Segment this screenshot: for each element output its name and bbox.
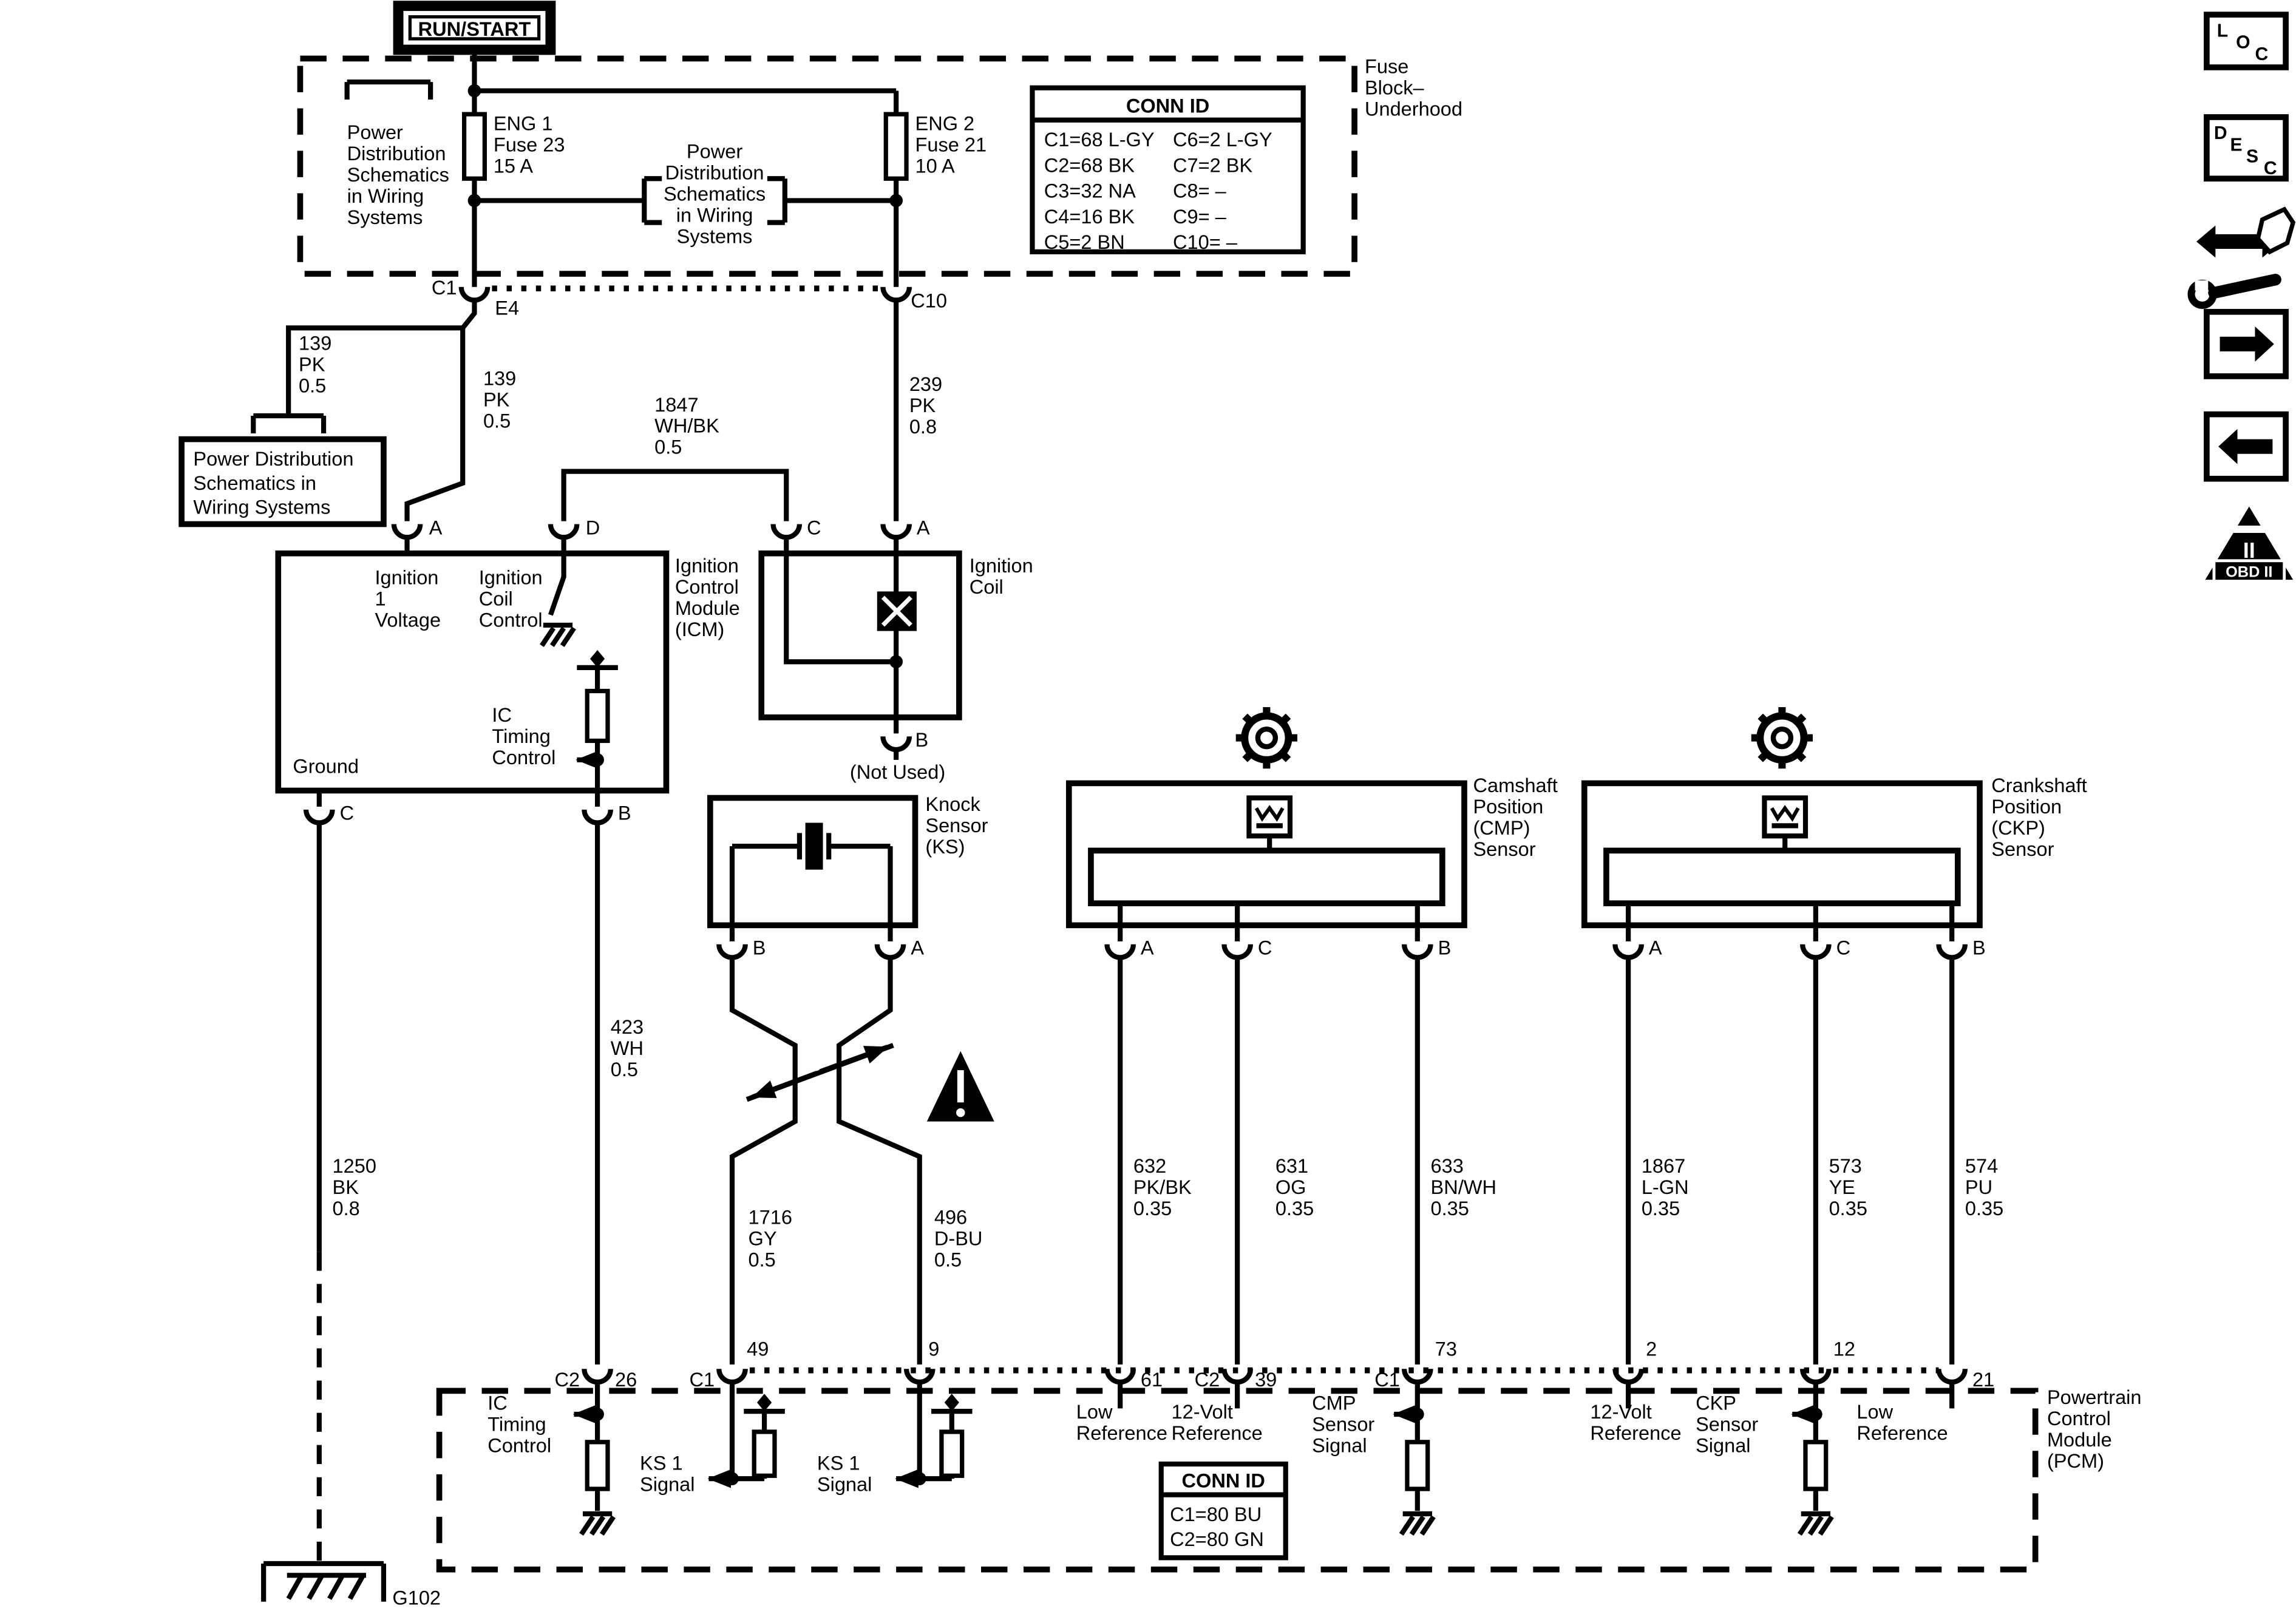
wire-631-label: 631OG0.35 <box>1275 1155 1314 1219</box>
coil-terminal-c-label: C <box>807 517 821 538</box>
wire-1847-label: 1847WH/BK0.5 <box>654 394 719 458</box>
ckp-element-icon <box>1764 798 1805 836</box>
power-dist-box-label: Power DistributionSchematics inWiring Sy… <box>193 448 353 518</box>
cmp-terminal-b-icon <box>1404 944 1430 958</box>
g102-comb-ground-icon <box>287 1575 366 1599</box>
loc-letter-o: O <box>2236 33 2250 53</box>
ckp-inner-body <box>1606 850 1958 903</box>
fuse-block-underhood: FuseBlock–Underhood PowerDistributionSch… <box>300 50 1462 319</box>
knock-sensor: KnockSensor(KS) B A <box>710 793 988 958</box>
pcm-internal-node-icon <box>757 1394 772 1411</box>
tools-navigation-icon[interactable] <box>2192 209 2294 305</box>
pcm-pin-73-conn: C1 <box>1374 1369 1400 1391</box>
coil-terminal-a-icon <box>883 524 909 537</box>
icm-terminal-a-icon <box>394 524 420 537</box>
wire-496-label: 496D-BU0.5 <box>934 1206 983 1270</box>
fuse-eng2-label: ENG 2Fuse 2110 A <box>915 113 987 177</box>
pcm-ks1-label-2: KS 1Signal <box>817 1453 872 1496</box>
obd2-label: OBD II <box>2226 563 2272 580</box>
g102-bracket-icon <box>263 1564 384 1602</box>
pcm-pin-12-num: 12 <box>1833 1338 1855 1360</box>
pcm-resistor-symbol <box>754 1432 775 1476</box>
ks-terminal-b-label: B <box>753 937 766 959</box>
cmp-terminal-c-label: C <box>1258 937 1272 959</box>
cmp-terminal-c-icon <box>1224 944 1250 958</box>
pcm-conn-id-table: CONN ID C1=80 BUC2=80 GN <box>1161 1464 1286 1558</box>
icm-terminal-c-icon <box>306 810 332 823</box>
fuse-eng1-label: ENG 1Fuse 2315 A <box>494 113 565 177</box>
icm-terminal-b-icon <box>584 810 610 823</box>
wire-1716-gy <box>732 957 795 1364</box>
cmp-gear-icon <box>1236 707 1297 768</box>
junction-dot <box>468 84 481 98</box>
ckp-gear-icon <box>1751 707 1813 768</box>
power-dist-ref-boxed: Power DistributionSchematics inWiring Sy… <box>182 439 384 524</box>
wire-239-label: 239PK0.8 <box>909 373 942 438</box>
coil-border <box>761 554 959 717</box>
junction-dot <box>889 194 903 208</box>
pcm-12v-label-2: 12-VoltReference <box>1590 1401 1681 1444</box>
cmp-terminal-a-icon <box>1107 944 1133 958</box>
cmp-element-zigzag <box>1256 808 1282 818</box>
cmp-terminal-stubs <box>1120 903 1418 941</box>
wire-632-label: 632PK/BK0.35 <box>1133 1155 1192 1219</box>
offpage-bracket-icon <box>253 416 324 433</box>
obd2-pillar-label: II <box>2243 538 2255 563</box>
obd2-pillar-cap <box>2230 526 2268 533</box>
desc-letter-s: S <box>2246 147 2258 167</box>
icm-internal-node-icon <box>590 650 605 668</box>
icm-switch-symbol <box>551 554 564 615</box>
pcm-cmp-signal-label: CMPSensorSignal <box>1312 1392 1374 1457</box>
loc-letter-c: C <box>2255 44 2268 64</box>
loc-letter-l: L <box>2217 21 2228 41</box>
wire-139b-label: 139PK0.5 <box>483 367 516 432</box>
ckp-element-zigzag <box>1772 808 1798 818</box>
ks-label: KnockSensor(KS) <box>925 793 988 858</box>
wire-574-label: 574PU0.35 <box>1965 1155 2003 1219</box>
pcm-pin-49-icon <box>719 1369 745 1382</box>
power-dist-ref-left: PowerDistributionSchematicsin WiringSyst… <box>347 121 449 228</box>
pcm-pin-39-conn: C2 <box>1195 1369 1220 1391</box>
pcm-resistor-symbol <box>942 1432 962 1476</box>
pcm-label: PowertrainControlModule(PCM) <box>2047 1386 2142 1472</box>
schematic-canvas: RUN/START FuseBlock–Underhood PowerDistr… <box>0 0 2296 1616</box>
coil-not-used-label: (Not Used) <box>850 761 945 783</box>
pcm-resistor-symbol <box>587 1442 608 1489</box>
pcm-pin-73-num: 73 <box>1435 1338 1457 1360</box>
cmp-element-icon <box>1249 798 1290 836</box>
icm-terminal-d-icon <box>551 524 577 537</box>
fuse-block-bus-wire <box>474 91 896 115</box>
offpage-bracket-icon <box>347 82 430 100</box>
wire-1250-label: 1250BK0.8 <box>333 1155 376 1219</box>
coil-terminal-b-icon <box>883 736 909 750</box>
ckp-terminal-a-icon <box>1615 944 1641 958</box>
back-arrow-icon <box>2218 429 2272 464</box>
pcm-lowref-label-2: LowReference <box>1856 1401 1948 1444</box>
loc-button[interactable]: L O C <box>2207 15 2286 67</box>
pcm-pin-26-num: 26 <box>615 1369 637 1391</box>
pcm-ckp-signal-label: CKPSensorSignal <box>1696 1392 1758 1457</box>
pcm-pin-61-num: 61 <box>1141 1369 1163 1391</box>
twisted-pair-arrow-right <box>820 1047 888 1072</box>
pcm-internal-ground-icon <box>582 1514 614 1534</box>
wire-139a-label: 139PK0.5 <box>299 332 331 396</box>
desc-letter-d: D <box>2214 123 2227 143</box>
wire-139-pk-main <box>407 300 475 521</box>
coil-internal-wires <box>786 554 896 717</box>
sidebar-buttons: L O C D E S C II <box>2192 15 2294 581</box>
ks-terminal-a-icon <box>877 944 903 958</box>
coil-label: IgnitionCoil <box>970 555 1033 598</box>
ks-terminal-a-label: A <box>911 937 924 959</box>
icm-resistor-symbol <box>587 691 608 741</box>
icm-ground-label: Ground <box>293 756 359 778</box>
pcm-pin-2-num: 2 <box>1646 1338 1657 1360</box>
fuse-block-label: FuseBlock–Underhood <box>1365 56 1462 120</box>
back-arrow-button[interactable] <box>2207 415 2286 479</box>
connector-c10-label: C10 <box>911 290 947 312</box>
conn-id-title: CONN ID <box>1126 95 1209 117</box>
ckp-sensor: CrankshaftPosition(CKP)Sensor A C B <box>1584 707 2087 959</box>
twisted-pair-arrow-left <box>753 1073 817 1097</box>
connector-c10-icon <box>883 287 909 300</box>
pcm-resistor-symbol <box>1407 1442 1428 1489</box>
pcm-pin-9-num: 9 <box>928 1338 939 1360</box>
power-dist-ref-mid: PowerDistributionSchematicsin WiringSyst… <box>664 140 766 247</box>
junction-dot <box>468 194 481 208</box>
pcm-internal-ground-icon <box>1799 1514 1832 1534</box>
forward-arrow-button[interactable] <box>2207 312 2286 376</box>
icm-terminal-c-label: C <box>340 802 355 824</box>
pcm-pin-39-num: 39 <box>1255 1369 1277 1391</box>
ckp-terminal-a-label: A <box>1649 937 1662 959</box>
icm-ignition1-voltage-label: Ignition1Voltage <box>375 566 441 631</box>
ks-piezo-element-icon <box>806 823 823 870</box>
wire-573-label: 573YE0.35 <box>1829 1155 1867 1219</box>
conn-id-col2: C6=2 L-GYC7=2 BKC8= –C9= –C10= – <box>1173 129 1272 253</box>
ckp-terminal-b-icon <box>1938 944 1965 958</box>
pcm-ic-timing-label: ICTimingControl <box>487 1392 551 1457</box>
pcm-internal-node-icon <box>945 1394 959 1411</box>
icm-module: A D IgnitionControlModule(ICM) Ignition1… <box>278 517 739 824</box>
icm-terminal-a-label: A <box>429 517 443 538</box>
junction-dot <box>889 655 903 668</box>
icm-internal-ground-icon <box>542 625 574 646</box>
connector-c1-label: C1 <box>432 277 457 299</box>
wire-633-label: 633BN/WH0.35 <box>1431 1155 1496 1219</box>
g102-ground: G102 <box>263 1564 441 1609</box>
ckp-terminal-b-label: B <box>1972 937 1986 959</box>
forward-arrow-icon <box>2220 327 2274 362</box>
connector-e4-label: E4 <box>495 297 519 319</box>
icm-ignition-coil-control-label: IgnitionCoilControl <box>479 566 543 631</box>
ckp-terminal-c-label: C <box>1836 937 1851 959</box>
obd2-button[interactable]: II OBD II <box>2205 507 2293 581</box>
cmp-sensor: CamshaftPosition(CMP)Sensor A C B <box>1069 707 1558 959</box>
ckp-terminal-c-icon <box>1802 944 1829 958</box>
ks-terminal-b-icon <box>719 944 745 958</box>
wire-1847-whbk <box>564 472 787 521</box>
coil-terminal-b-label: B <box>915 729 928 751</box>
icm-terminal-d-label: D <box>586 517 600 538</box>
pcm-ks1-label-1: KS 1Signal <box>640 1453 695 1496</box>
conn-id-col1: C1=68 L-GYC2=68 BKC3=32 NAC4=16 BKC5=2 B… <box>1044 129 1155 253</box>
wire-423-label: 423WH0.5 <box>611 1016 644 1080</box>
wire-496-dbu <box>839 957 920 1364</box>
g102-label: G102 <box>392 1587 441 1609</box>
icm-label: IgnitionControlModule(ICM) <box>675 555 740 640</box>
connector-c1-icon <box>461 287 487 300</box>
icm-ic-timing-label: ICTimingControl <box>492 704 555 768</box>
run-start-block: RUN/START <box>398 6 551 50</box>
pcm-pin-26-icon <box>584 1369 610 1382</box>
cmp-terminal-a-label: A <box>1141 937 1154 959</box>
coil-terminal-a-label: A <box>917 517 930 538</box>
warning-triangle-icon <box>927 1051 994 1122</box>
icm-terminal-b-label: B <box>618 802 631 824</box>
pcm-pin-21-icon <box>1938 1369 1965 1382</box>
run-start-label: RUN/START <box>418 18 531 40</box>
pcm-pin-49-num: 49 <box>747 1338 769 1360</box>
wire-1716-label: 1716GY0.5 <box>749 1206 792 1270</box>
desc-button[interactable]: D E S C <box>2207 117 2286 178</box>
pcm-internal-ground-icon <box>1401 1514 1433 1534</box>
cmp-inner-body <box>1091 850 1442 903</box>
ckp-label: CrankshaftPosition(CKP)Sensor <box>1991 775 2087 860</box>
ckp-terminal-stubs <box>1628 903 1952 941</box>
pcm-pin-26-conn: C2 <box>555 1369 580 1391</box>
fuse-eng2-symbol <box>886 114 906 178</box>
pcm-conn-id-title: CONN ID <box>1182 1470 1265 1492</box>
pcm-resistor-symbol <box>1805 1442 1826 1489</box>
pcm-pin-49-conn: C1 <box>689 1369 715 1391</box>
wire-1867-label: 1867L-GN0.35 <box>1642 1155 1689 1219</box>
fuse-eng1-symbol <box>464 114 485 178</box>
desc-letter-c: C <box>2264 158 2277 178</box>
desc-letter-e: E <box>2230 135 2242 155</box>
coil-terminal-c-icon <box>773 524 800 537</box>
fuse-block-conn-id-table: CONN ID C1=68 L-GYC2=68 BKC3=32 NAC4=16 … <box>1032 88 1303 253</box>
pcm-conn-id-rows: C1=80 BUC2=80 GN <box>1170 1503 1264 1550</box>
pcm-12v-label-1: 12-VoltReference <box>1172 1401 1263 1444</box>
pcm-module: C2 26 C1 49 9 61 C2 39 C1 73 2 12 21 Pow… <box>440 1338 2142 1569</box>
pcm-pin-21-num: 21 <box>1972 1369 1994 1391</box>
cmp-terminal-b-label: B <box>1438 937 1452 959</box>
cmp-label: CamshaftPosition(CMP)Sensor <box>1473 775 1557 860</box>
ignition-coil: C A IgnitionCoil B (Not Used) <box>761 517 1033 783</box>
